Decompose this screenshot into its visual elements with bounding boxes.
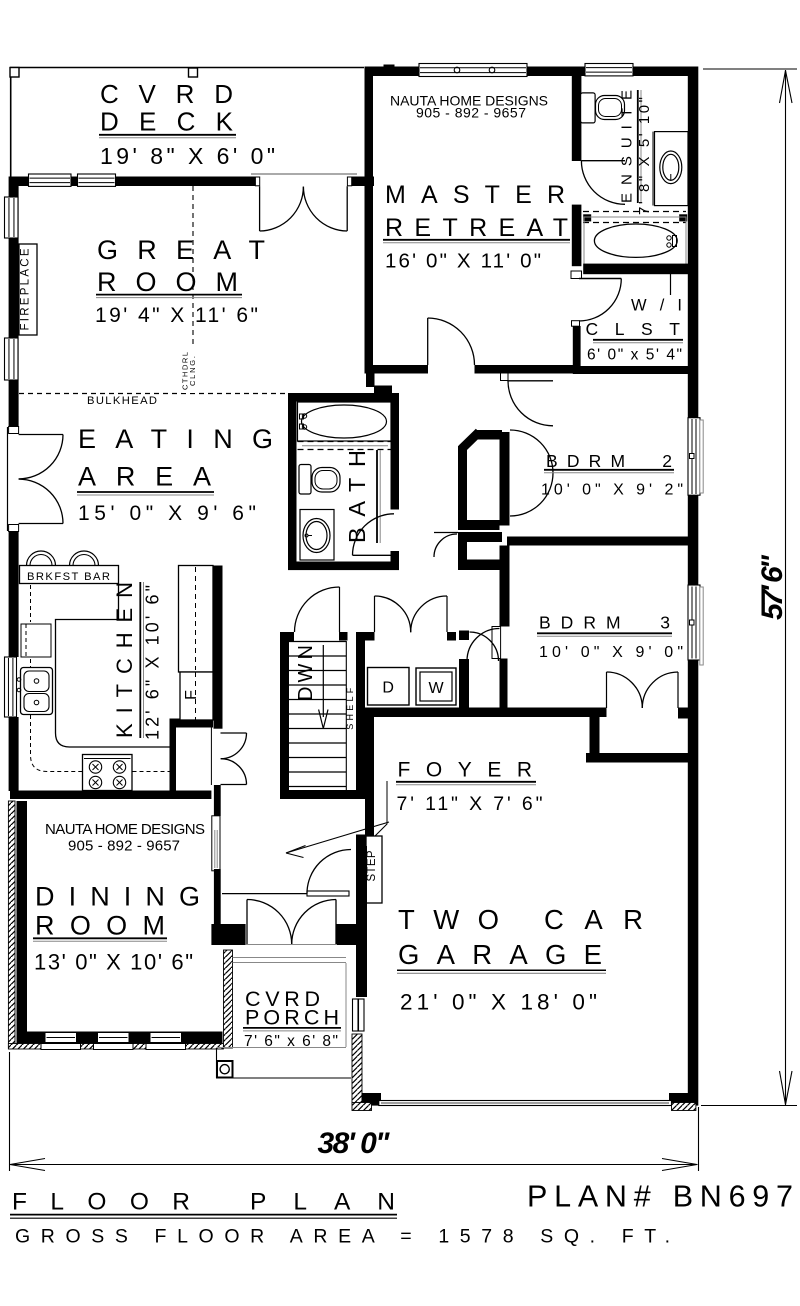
svg-text:BRKFST BAR: BRKFST BAR <box>27 571 110 583</box>
svg-text:905 - 892 - 9657: 905 - 892 - 9657 <box>68 838 180 855</box>
svg-text:7' 6" x 6' 8": 7' 6" x 6' 8" <box>244 1033 338 1050</box>
svg-text:19' 4" X 11' 6": 19' 4" X 11' 6" <box>95 304 258 327</box>
svg-text:NAUTA HOME DESIGNS: NAUTA HOME DESIGNS <box>45 821 205 838</box>
svg-text:CLNG.: CLNG. <box>188 356 197 386</box>
svg-text:CAR: CAR <box>544 904 643 935</box>
svg-text:905 - 892 - 9657: 905 - 892 - 9657 <box>416 105 526 121</box>
svg-text:PORCH: PORCH <box>245 1006 339 1030</box>
svg-text:6' 0" x 5' 4": 6' 0" x 5' 4" <box>587 347 682 364</box>
svg-text:TWO: TWO <box>398 904 499 935</box>
svg-text:16' 0" X 11' 0": 16' 0" X 11' 0" <box>385 250 541 273</box>
svg-text:F: F <box>183 690 200 700</box>
svg-text:38' 0": 38' 0" <box>318 1127 391 1160</box>
svg-text:BULKHEAD: BULKHEAD <box>87 395 157 407</box>
svg-text:D: D <box>382 680 394 697</box>
svg-text:PLAN# BN697: PLAN# BN697 <box>527 1180 793 1214</box>
svg-text:STEP: STEP <box>366 850 378 881</box>
svg-text:13' 0" X 10' 6": 13' 0" X 10' 6" <box>34 950 193 975</box>
svg-text:57' 6": 57' 6" <box>756 554 789 620</box>
svg-text:FIREPLACE: FIREPLACE <box>19 248 31 330</box>
svg-text:W: W <box>428 680 444 697</box>
svg-text:DWN: DWN <box>295 645 317 701</box>
